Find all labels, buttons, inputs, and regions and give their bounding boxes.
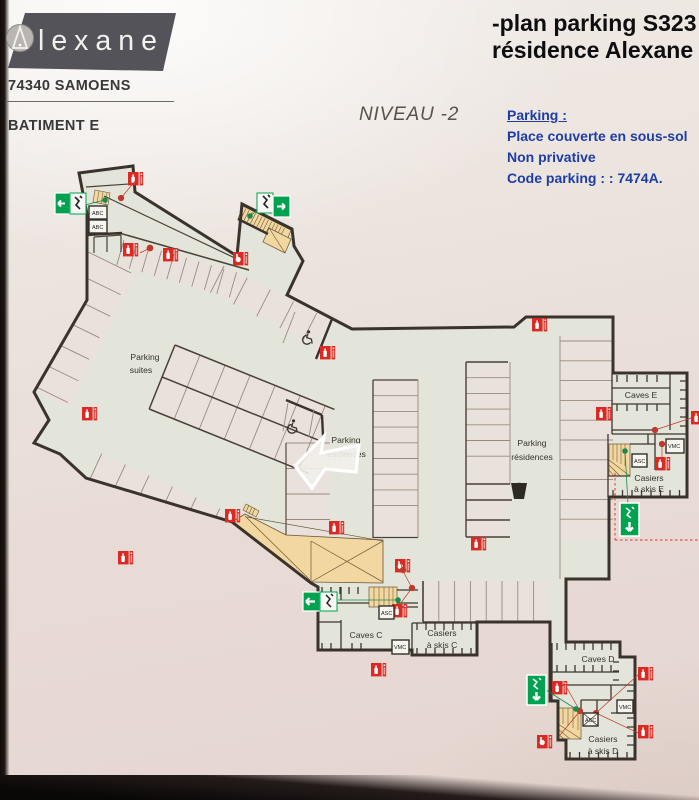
svg-text:Caves D: Caves D: [582, 654, 615, 664]
svg-text:VMC: VMC: [668, 444, 680, 450]
svg-text:à skis C: à skis C: [427, 640, 458, 650]
svg-text:ASC: ASC: [634, 459, 645, 465]
svg-text:Parking: Parking: [331, 435, 360, 445]
svg-text:Casiers: Casiers: [588, 734, 617, 744]
svg-text:à skis E: à skis E: [634, 484, 664, 494]
svg-text:ASC: ASC: [381, 611, 392, 617]
svg-text:VMC: VMC: [394, 645, 406, 651]
svg-text:Caves C: Caves C: [350, 630, 383, 640]
svg-text:Caves E: Caves E: [625, 390, 658, 400]
svg-text:Casiers: Casiers: [427, 628, 456, 638]
svg-text:à skis D: à skis D: [588, 746, 619, 756]
svg-text:suites: suites: [130, 365, 152, 375]
svg-text:ABC: ABC: [92, 211, 103, 217]
svg-text:VMC: VMC: [619, 705, 631, 711]
svg-text:Parking: Parking: [130, 352, 159, 362]
svg-text:résidences: résidences: [511, 452, 553, 462]
svg-text:Parking: Parking: [517, 438, 546, 448]
svg-text:Casiers: Casiers: [634, 473, 663, 483]
svg-text:ABC: ABC: [92, 225, 103, 231]
